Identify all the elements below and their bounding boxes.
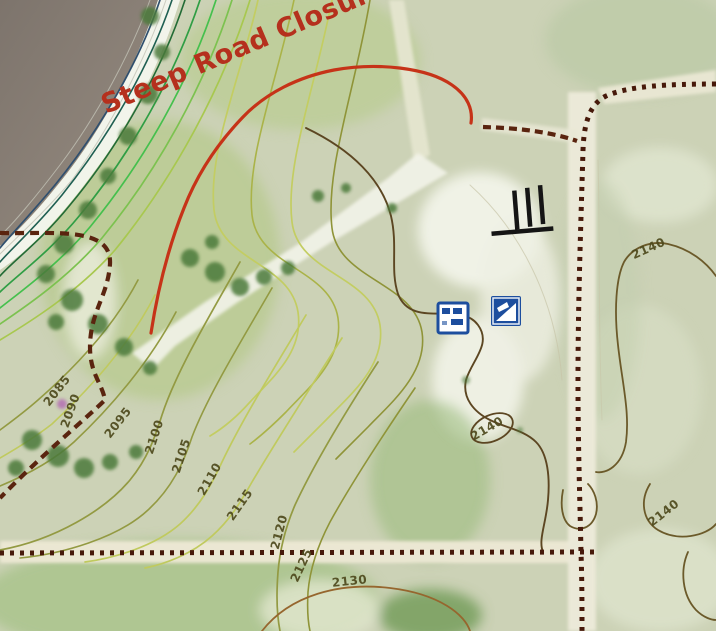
contour-label: 2100 <box>142 418 166 456</box>
boat-ramp-icon <box>491 296 521 326</box>
recreation-site-icon-frame <box>438 303 468 333</box>
contour-label: 2140 <box>629 235 667 262</box>
contour-label: 2140 <box>645 496 682 529</box>
boat-ramp-icon-frame <box>491 296 521 326</box>
contour-label: 2105 <box>169 437 193 475</box>
recreation-site-icon <box>438 303 468 333</box>
map-canvas: Steep Road Closure 2085 2090 2095 2100 2… <box>0 0 716 631</box>
topo-map: Steep Road Closure 2085 2090 2095 2100 2… <box>0 0 716 631</box>
contour-label: 2115 <box>224 486 256 523</box>
contour-label: 2110 <box>195 460 225 498</box>
